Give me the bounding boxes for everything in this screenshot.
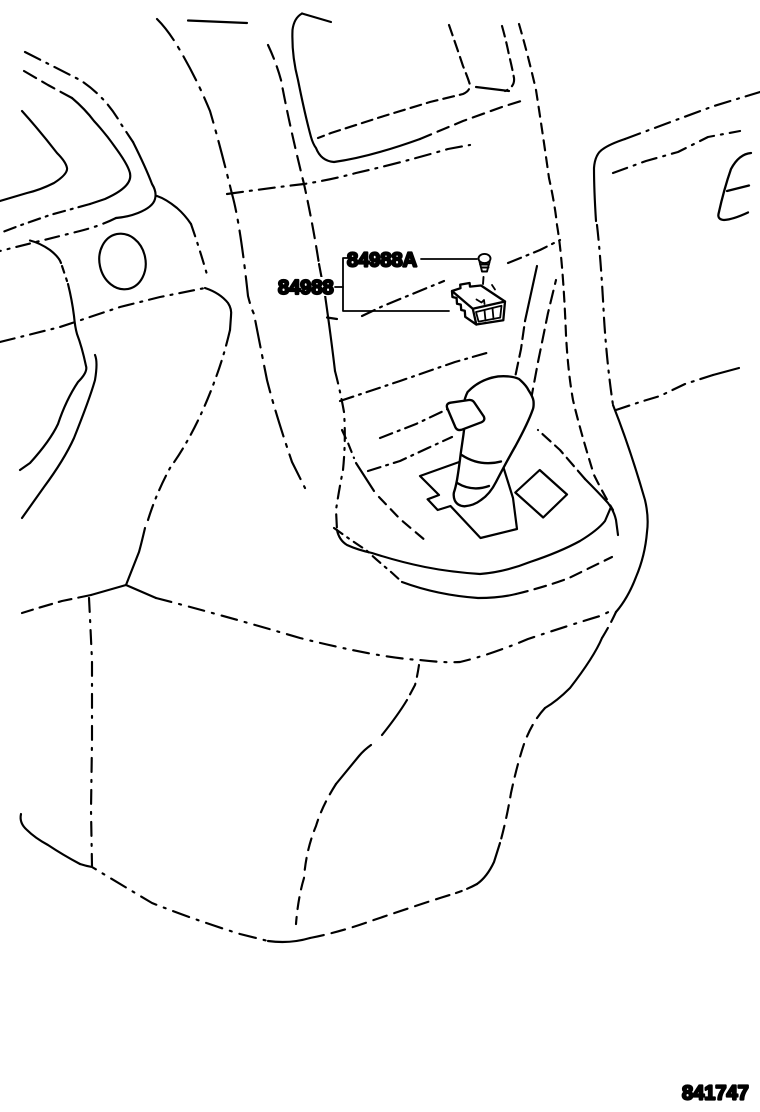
svg-text:84988: 84988 xyxy=(278,277,334,299)
svg-text:841747: 841747 xyxy=(682,1083,749,1105)
svg-text:84988A: 84988A xyxy=(347,250,417,272)
